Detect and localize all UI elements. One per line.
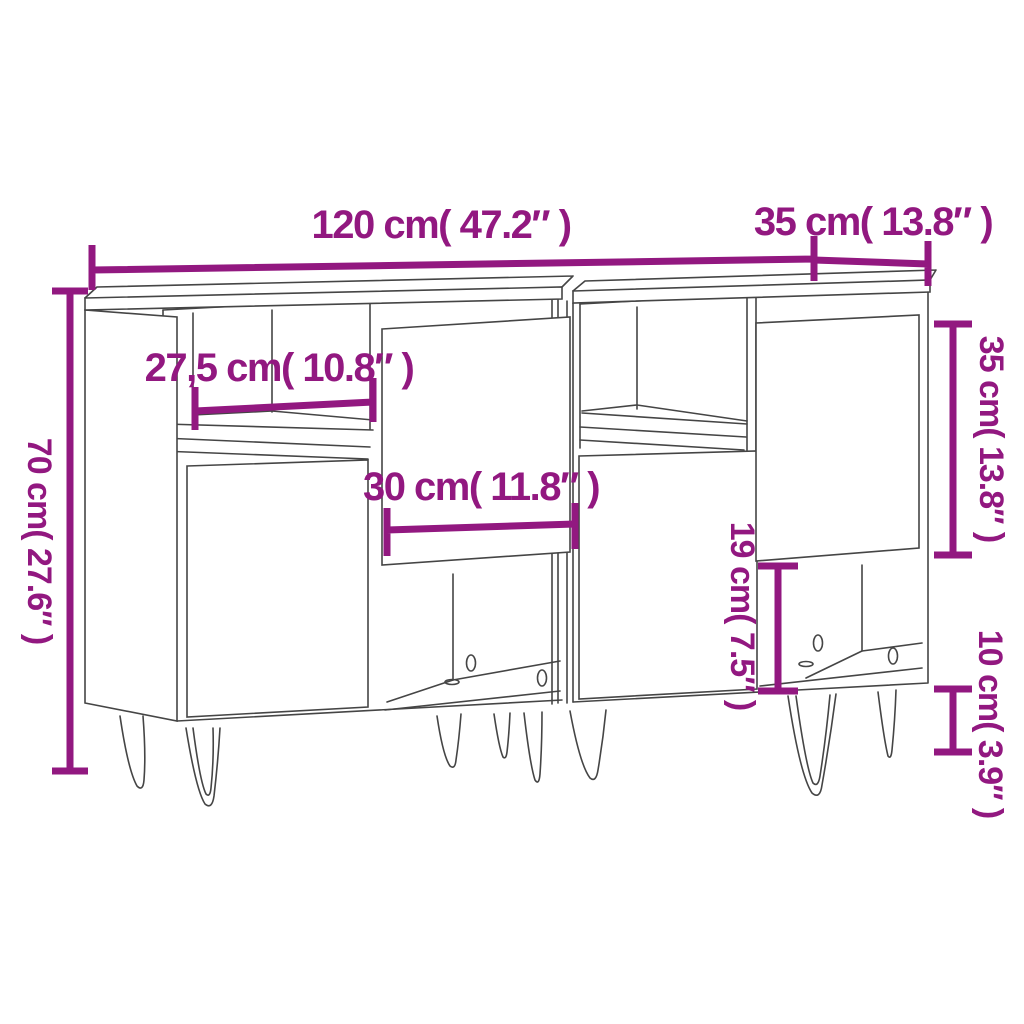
dimension-label-shelf-width: 27,5 cm( 10.8″ )	[145, 348, 414, 388]
furniture-line-drawing	[0, 0, 1024, 1024]
left-top-board	[85, 276, 573, 310]
dimension-label-door-height: 35 cm( 13.8″ )	[974, 336, 1008, 542]
cable-hole	[814, 635, 823, 651]
leg-front-left-outer	[186, 728, 220, 806]
right-top-board	[573, 270, 936, 303]
leg-front-left-inner	[193, 728, 213, 795]
dim-line-top-depth	[814, 241, 928, 286]
leg-mid-1	[437, 714, 461, 767]
leg-back-right	[878, 690, 896, 757]
dim-line-opening-height	[758, 566, 798, 691]
dimension-label-total-height: 70 cm( 27.6″ )	[22, 438, 56, 644]
right-open-compartment	[580, 295, 756, 452]
dimension-label-opening-height: 19 cm( 7.5″ )	[725, 522, 759, 711]
right-lower-open-section	[760, 565, 922, 686]
leg-mount-plate	[799, 662, 813, 667]
leg-mid-4	[570, 710, 606, 779]
leg-mid-3	[524, 712, 542, 782]
dim-line-leg-height	[934, 689, 972, 752]
left-bottom-door	[187, 460, 368, 717]
leg-back-left	[120, 716, 145, 788]
dimension-label-total-width: 120 cm( 47.2″ )	[311, 205, 570, 245]
cable-hole	[467, 655, 476, 671]
right-top-door	[756, 315, 919, 561]
dim-line-door-height	[934, 324, 972, 555]
dimension-label-leg-height: 10 cm( 3.9″ )	[973, 630, 1007, 819]
cable-hole	[538, 670, 547, 686]
dimension-label-door-width: 30 cm( 11.8″ )	[363, 467, 599, 507]
left-lower-open-section	[385, 574, 560, 710]
dimension-label-top-depth: 35 cm( 13.8″ )	[754, 202, 992, 242]
cable-hole	[889, 648, 898, 664]
dimension-diagram: 120 cm( 47.2″ ) 35 cm( 13.8″ ) 70 cm( 27…	[0, 0, 1024, 1024]
leg-mid-2	[494, 713, 510, 758]
